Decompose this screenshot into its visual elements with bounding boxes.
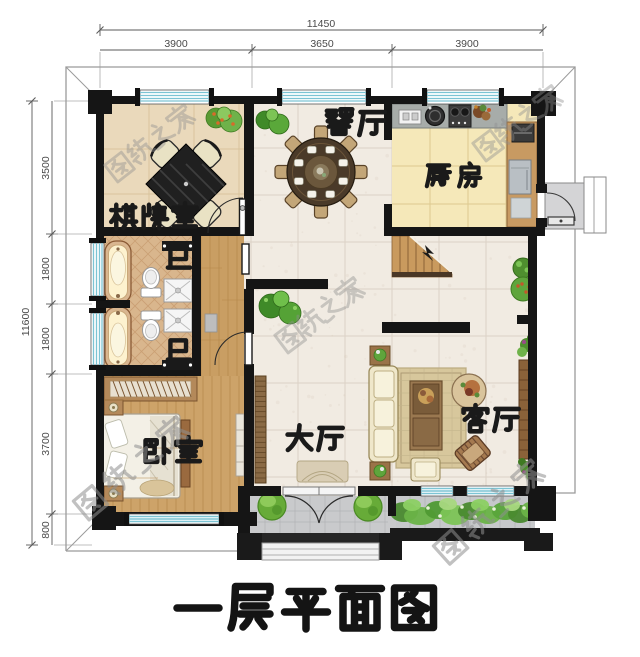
svg-text:3900: 3900 xyxy=(455,38,479,50)
svg-text:11450: 11450 xyxy=(307,18,336,30)
svg-text:3900: 3900 xyxy=(164,38,188,50)
svg-text:3500: 3500 xyxy=(40,156,52,180)
svg-text:11600: 11600 xyxy=(20,308,32,337)
svg-text:800: 800 xyxy=(40,521,52,539)
svg-text:3700: 3700 xyxy=(40,432,52,456)
svg-text:1800: 1800 xyxy=(40,257,52,281)
svg-text:1800: 1800 xyxy=(40,327,52,351)
svg-text:3650: 3650 xyxy=(310,38,334,50)
